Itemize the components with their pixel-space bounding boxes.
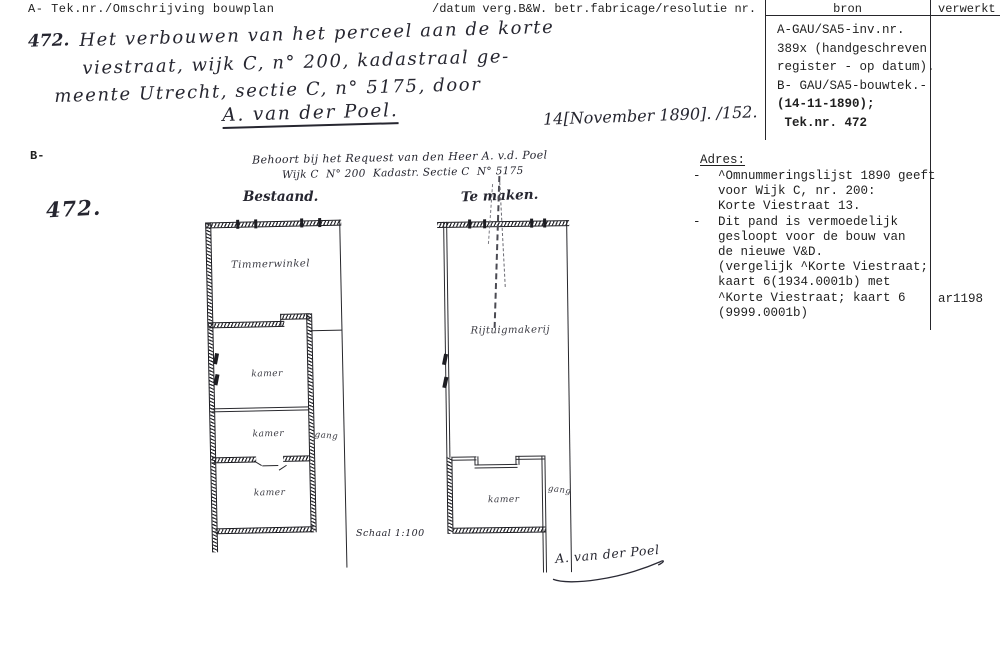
wall-corridor — [306, 313, 317, 532]
table-rule-left — [765, 0, 766, 140]
window-tick — [236, 220, 239, 229]
request-line2: Wijk C N° 200 Kadastr. Sectie C N° 5175 — [282, 165, 524, 181]
corridor-label-gang: gang — [547, 484, 572, 497]
adres-line: de nieuwe V&D. — [693, 245, 931, 260]
b-section-label: B- — [30, 149, 44, 163]
door-threshold — [279, 465, 287, 471]
door-hook — [213, 353, 219, 365]
header-left-label: A- Tek.nr./Omschrijving bouwplan — [28, 2, 274, 16]
header-mid-label: /datum verg.B&W. betr.fabricage/resoluti… — [432, 2, 756, 16]
floor-plan-bestaand: Timmerwinkel kamer kamer kamer gang — [200, 211, 357, 572]
room-label-timmerwinkel: Timmerwinkel — [231, 258, 310, 271]
applicant-name: A. van der Poel. — [222, 100, 399, 129]
window-tick — [543, 218, 546, 227]
door-threshold — [254, 460, 262, 465]
wall-internal-recess — [475, 464, 518, 469]
archive-card-page: A- Tek.nr./Omschrijving bouwplan /datum … — [0, 0, 1000, 658]
adres-line: kaart 6(1934.0001b) met — [693, 275, 931, 290]
adres-line: Korte Viestraat 13. — [693, 199, 931, 214]
wall-internal — [208, 321, 284, 329]
bron-line: Tek.nr. 472 — [777, 114, 935, 133]
window-tick — [530, 219, 533, 228]
plan-number-large: 472. — [45, 195, 101, 223]
left-plan-title: Bestaand. — [243, 189, 318, 205]
wall-left — [205, 222, 218, 552]
room-label-kamer: kamer — [488, 495, 520, 505]
bron-line: register - op datum). — [777, 58, 935, 77]
window-tick — [254, 219, 257, 228]
date-note: 14[November 1890]. /152. — [543, 102, 758, 128]
wall-top — [205, 220, 341, 229]
request-line1: Behoort bij het Request van den Heer A. … — [252, 148, 548, 166]
wall-internal — [283, 455, 310, 462]
column-header-bron: bron — [765, 2, 930, 16]
wall-top — [437, 220, 569, 228]
adres-line: -Dit pand is vermoedelijk — [693, 215, 931, 230]
window-tick — [318, 218, 321, 227]
adres-line: ^Korte Viestraat; kaart 6 — [693, 291, 931, 306]
window-tick — [483, 219, 486, 228]
wall-connector — [515, 456, 519, 465]
wall-right-outer — [566, 220, 572, 572]
window-tick — [468, 219, 471, 228]
plan-number-top: 472. — [28, 30, 70, 51]
adres-notes: -^Omnummeringslijst 1890 geeft voor Wijk… — [693, 169, 931, 321]
bron-line: (14-11-1890); — [777, 95, 935, 114]
wall-right-outer — [339, 220, 347, 568]
adres-heading: Adres: — [700, 153, 745, 167]
corridor-label-gang: gang — [314, 430, 338, 442]
adres-line: -^Omnummeringslijst 1890 geeft — [693, 169, 931, 184]
wall-bottom — [453, 526, 545, 533]
adres-line: voor Wijk C, nr. 200: — [693, 184, 931, 199]
wall-left-lower — [446, 457, 453, 534]
archive-code: ar1198 — [938, 292, 983, 306]
door-threshold — [262, 465, 278, 466]
door-hook — [213, 374, 219, 386]
bron-line: B- GAU/SA5-bouwtek.- — [777, 77, 935, 96]
bullet-dash: - — [693, 215, 701, 230]
room-label-kamer: kamer — [253, 429, 285, 440]
wall-internal — [452, 456, 476, 460]
bron-line: A-GAU/SA5-inv.nr. — [777, 21, 935, 40]
wall-left — [443, 222, 450, 458]
room-label-kamer: kamer — [251, 369, 283, 380]
window-tick — [300, 218, 303, 227]
adres-line: (vergelijk ^Korte Viestraat; — [693, 260, 931, 275]
wall-bottom — [216, 526, 314, 534]
adres-line: gesloopt voor de bouw van — [693, 230, 931, 245]
wall-connector — [474, 456, 478, 465]
bullet-dash: - — [693, 169, 701, 184]
wall-internal — [211, 406, 309, 412]
corridor-top-line — [310, 330, 341, 332]
adres-line: (9999.0001b) — [693, 306, 931, 321]
wall-internal — [515, 455, 544, 459]
wall-internal — [212, 456, 256, 463]
bron-cell: A-GAU/SA5-inv.nr. 389x (handgeschreven r… — [777, 21, 935, 132]
bron-line: 389x (handgeschreven — [777, 40, 935, 59]
scale-note: Schaal 1:100 — [356, 528, 425, 539]
description-line3: meente Utrecht, sectie C, n° 5175, door — [54, 74, 482, 107]
floor-plan-te-maken: Rijtuigmakerij kamer gang — [435, 212, 582, 576]
room-label-kamer: kamer — [254, 488, 286, 499]
room-label-rijtuigmakerij: Rijtuigmakerij — [471, 324, 551, 336]
column-header-verwerkt: verwerkt — [938, 2, 996, 16]
